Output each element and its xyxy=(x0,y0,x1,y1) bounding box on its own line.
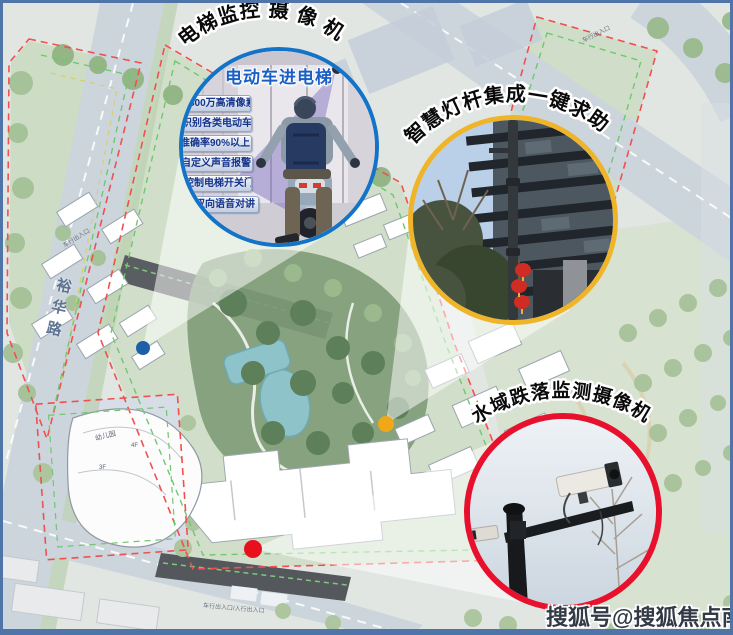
feature-badge-pixels: 500万高清像素 xyxy=(185,95,251,112)
feature-badge-recognition: 识别各类电动车 xyxy=(179,115,252,132)
elevator-feature-title: 电动车进电梯 xyxy=(183,63,375,88)
lightpole-camera-marker xyxy=(378,416,394,432)
feature-badge-door-control: 控制电梯开关门 xyxy=(180,175,252,192)
elevator-callout-photo: 电动车进电梯 500万高清像素 识别各类电动车 准确率90%以上 自定义声音报警… xyxy=(179,47,379,247)
feature-badge-intercom: 双向语音对讲 xyxy=(191,196,259,213)
site-plan-infographic: 电动车进电梯 500万高清像素 识别各类电动车 准确率90%以上 自定义声音报警… xyxy=(0,0,733,635)
lightpole-photo-scene xyxy=(413,120,613,320)
feature-badge-accuracy: 准确率90%以上 xyxy=(179,135,252,152)
feature-badge-alarm: 自定义声音报警 xyxy=(179,155,253,172)
water-callout-photo xyxy=(464,413,662,611)
sohu-watermark: 搜狐号@搜狐焦点南平站 xyxy=(546,600,733,632)
kindergarten-floors-a: 4F xyxy=(131,443,138,449)
elevator-camera-marker xyxy=(136,341,150,355)
kindergarten-floors-b: 3F xyxy=(99,465,106,471)
lightpole-callout-photo xyxy=(408,115,618,325)
water-camera-marker xyxy=(244,540,262,558)
water-camera-photo-scene xyxy=(470,419,656,605)
